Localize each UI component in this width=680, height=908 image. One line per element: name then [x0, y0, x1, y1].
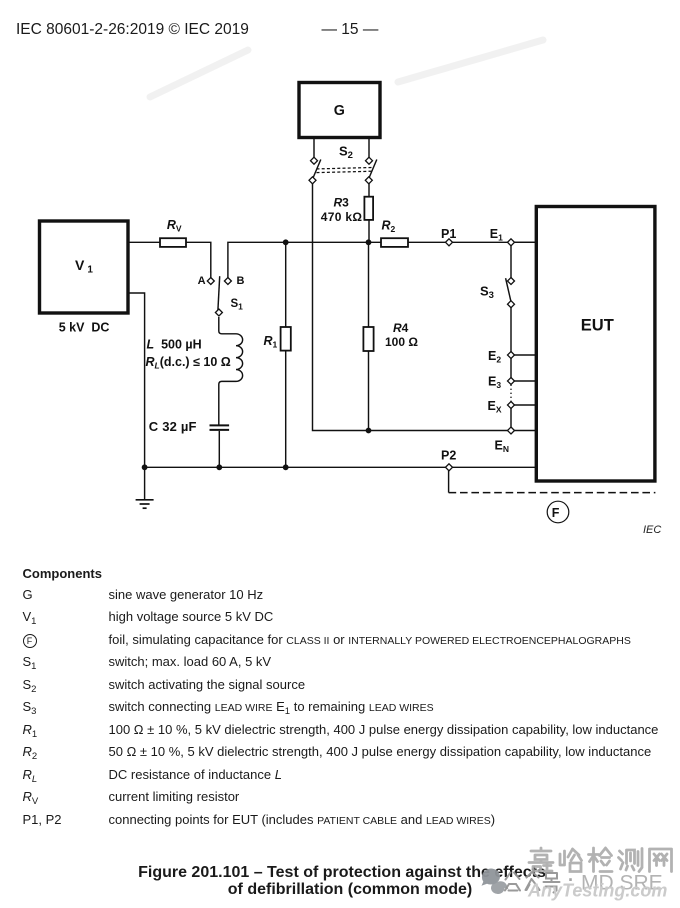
svg-text:EN: EN	[495, 439, 509, 455]
svg-text:S1: S1	[231, 298, 244, 312]
svg-text:AnyTesting.com: AnyTesting.com	[527, 881, 667, 901]
svg-text:EX: EX	[488, 399, 502, 415]
svg-text:5 kV DC: 5 kV DC	[59, 320, 110, 334]
svg-text:R3: R3	[334, 196, 350, 210]
svg-text:100 Ω: 100 Ω	[385, 335, 418, 349]
svg-text:S3: S3	[480, 284, 494, 302]
svg-text:L 500 µH: L 500 µH	[147, 338, 202, 352]
svg-text:S2: S2	[339, 144, 353, 162]
svg-text:P1: P1	[441, 227, 456, 241]
svg-text:G: G	[334, 103, 345, 119]
svg-text:E1: E1	[490, 227, 503, 243]
svg-text:R1: R1	[264, 334, 278, 350]
svg-text:B: B	[237, 275, 245, 287]
svg-text:R4: R4	[393, 321, 409, 335]
svg-text:F: F	[552, 506, 560, 520]
svg-text:E2: E2	[488, 349, 501, 365]
svg-text:R2: R2	[382, 219, 396, 235]
svg-text:EUT: EUT	[581, 317, 614, 335]
svg-text:RV: RV	[167, 218, 182, 234]
svg-text:470 kΩ: 470 kΩ	[321, 210, 363, 224]
svg-text:A: A	[198, 275, 206, 287]
svg-text:C 32 µF: C 32 µF	[149, 419, 197, 434]
svg-text:P2: P2	[441, 449, 456, 463]
svg-text:RL(d.c.) ≤ 10 Ω: RL(d.c.) ≤ 10 Ω	[146, 355, 231, 371]
svg-text:IEC: IEC	[643, 524, 661, 536]
svg-text:E3: E3	[488, 375, 501, 391]
